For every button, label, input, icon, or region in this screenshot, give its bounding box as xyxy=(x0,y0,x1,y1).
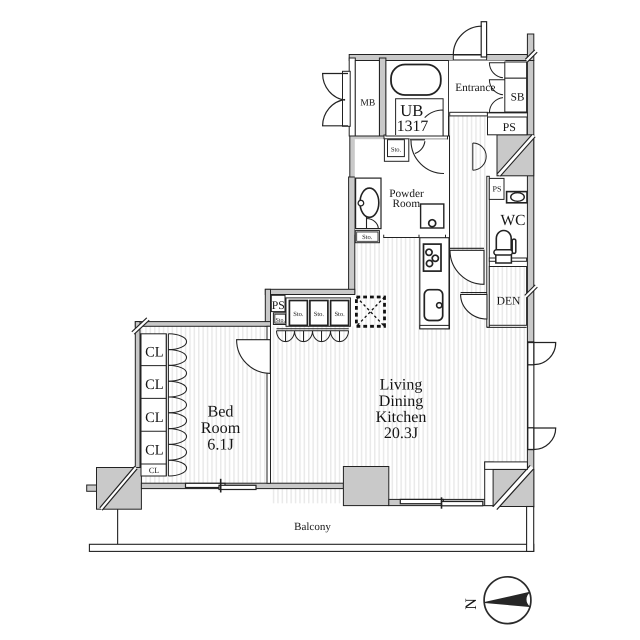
svg-text:N: N xyxy=(463,598,480,610)
svg-text:SB: SB xyxy=(511,92,525,104)
svg-text:Sto.: Sto. xyxy=(293,311,304,318)
svg-text:Sto.: Sto. xyxy=(334,311,345,318)
svg-text:PS: PS xyxy=(272,299,285,312)
svg-text:20.3J: 20.3J xyxy=(384,425,418,442)
svg-text:PS: PS xyxy=(493,185,502,194)
svg-text:Living: Living xyxy=(380,377,423,394)
svg-text:Room: Room xyxy=(201,419,241,437)
svg-text:Balcony: Balcony xyxy=(294,521,331,533)
svg-text:Sto.: Sto. xyxy=(314,311,325,318)
svg-text:CL: CL xyxy=(145,344,164,360)
svg-text:CL: CL xyxy=(145,377,164,393)
svg-text:1317: 1317 xyxy=(397,118,429,135)
svg-text:DEN: DEN xyxy=(497,295,521,308)
svg-text:CL: CL xyxy=(149,466,159,475)
svg-text:Dining: Dining xyxy=(379,393,423,410)
svg-text:PS: PS xyxy=(503,120,516,134)
svg-text:6.1J: 6.1J xyxy=(207,436,234,454)
svg-text:CL: CL xyxy=(145,410,164,426)
svg-text:CL: CL xyxy=(145,443,164,459)
svg-text:WC: WC xyxy=(501,212,526,229)
svg-text:Sto.: Sto. xyxy=(275,318,285,324)
svg-text:Bed: Bed xyxy=(207,403,233,421)
svg-text:MB: MB xyxy=(360,99,375,109)
svg-text:Kitchen: Kitchen xyxy=(376,409,427,426)
svg-text:Entrance: Entrance xyxy=(455,82,495,94)
svg-text:Room: Room xyxy=(392,198,420,210)
svg-text:Sto.: Sto. xyxy=(391,147,402,154)
svg-text:Sto.: Sto. xyxy=(362,234,373,241)
